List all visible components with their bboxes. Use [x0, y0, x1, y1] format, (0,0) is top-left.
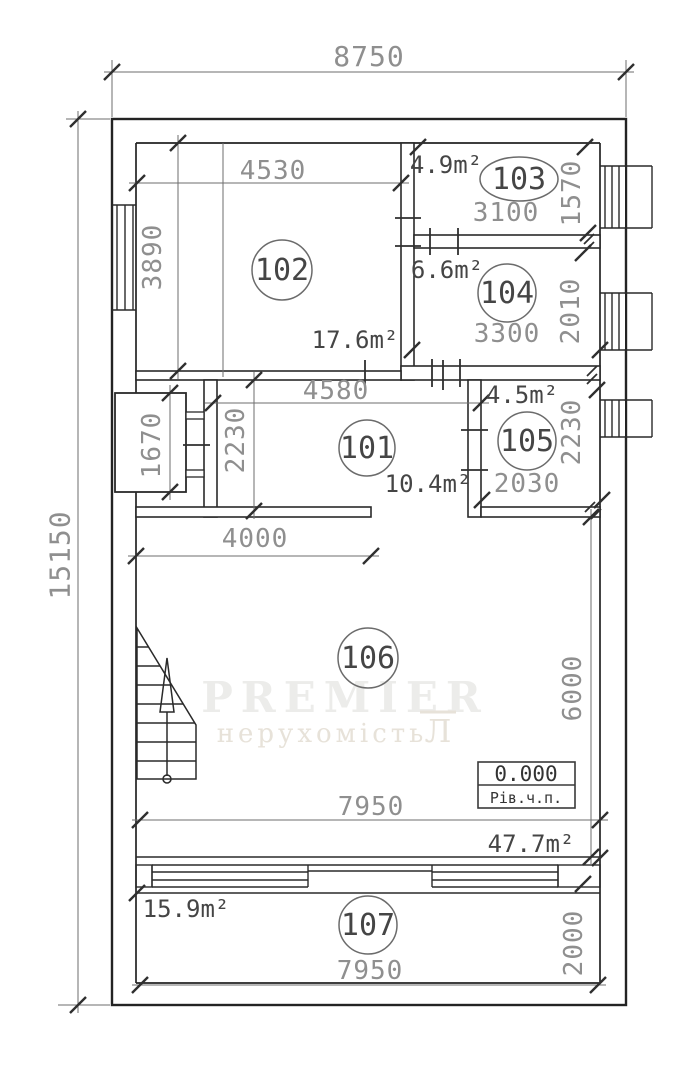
level-mark-label: Рів.ч.п. — [490, 789, 562, 807]
watermark-logo-mark: Л — [425, 712, 452, 750]
dim-room102-width: 4530 — [240, 156, 307, 186]
dim-room102-height: 3890 — [138, 224, 168, 291]
room-103-number: 103 — [492, 162, 546, 197]
window-room107-left — [152, 865, 308, 887]
room-105-number: 105 — [500, 424, 554, 459]
room-103-area: 4.9m² — [410, 151, 482, 179]
dim-niche-height: 1670 — [137, 412, 167, 479]
window-room107-right — [432, 865, 558, 887]
dim-room106-opening: 4000 — [222, 524, 289, 554]
dim-room103-width: 3100 — [473, 198, 540, 228]
room-105-labels: 105 4.5m² 2030 2230 — [486, 381, 587, 499]
dim-room105-width: 2030 — [494, 469, 561, 499]
dim-room107-width: 7950 — [337, 956, 404, 986]
room-104-number: 104 — [480, 276, 534, 311]
room-101-number: 101 — [340, 431, 394, 466]
room-104-area: 6.6m² — [411, 256, 483, 284]
room-101-labels: 101 10.4m² 4580 2230 — [221, 376, 471, 498]
staircase — [137, 628, 196, 783]
dim-room107-height: 2000 — [559, 910, 589, 977]
level-mark-value: 0.000 — [494, 762, 557, 786]
room-107-area: 15.9m² — [143, 895, 230, 923]
room-106-number: 106 — [341, 641, 395, 676]
room-107-number: 107 — [341, 908, 395, 943]
room-104-labels: 104 6.6m² 3300 2010 — [411, 256, 586, 349]
room-105-area: 4.5m² — [486, 381, 558, 409]
dim-room106-height: 6000 — [558, 655, 588, 722]
south-wall-room106 — [136, 857, 600, 893]
room-102-area: 17.6m² — [312, 326, 399, 354]
room-103-labels: 103 4.9m² 3100 1570 — [410, 151, 587, 228]
room-106-area: 47.7m² — [488, 830, 575, 858]
dim-room104-width: 3300 — [474, 319, 541, 349]
dim-room105-height: 2230 — [557, 399, 587, 466]
watermark-subtitle: нерухомість — [217, 719, 428, 749]
dim-room103-height: 1570 — [557, 160, 587, 227]
floorplan-canvas: PREMIER нерухомість Л — [0, 0, 690, 1080]
room-102-labels: 102 17.6m² 4530 3890 — [138, 156, 398, 354]
dim-overall-width: 8750 — [333, 40, 404, 73]
dim-room104-height: 2010 — [556, 278, 586, 345]
dimension-lines — [58, 60, 634, 1013]
room-102-number: 102 — [255, 253, 309, 288]
window-room102-left — [112, 205, 136, 310]
dim-room101-width: 4580 — [303, 376, 370, 406]
watermark: PREMIER нерухомість Л — [201, 673, 489, 750]
room-107-labels: 107 15.9m² 7950 2000 — [143, 895, 589, 986]
dim-overall-height: 15150 — [44, 510, 77, 599]
room-101-area: 10.4m² — [385, 470, 472, 498]
dim-room101-height: 2230 — [221, 407, 251, 474]
level-mark-box: 0.000 Рів.ч.п. — [478, 762, 575, 808]
dim-room106-width: 7950 — [338, 792, 405, 822]
